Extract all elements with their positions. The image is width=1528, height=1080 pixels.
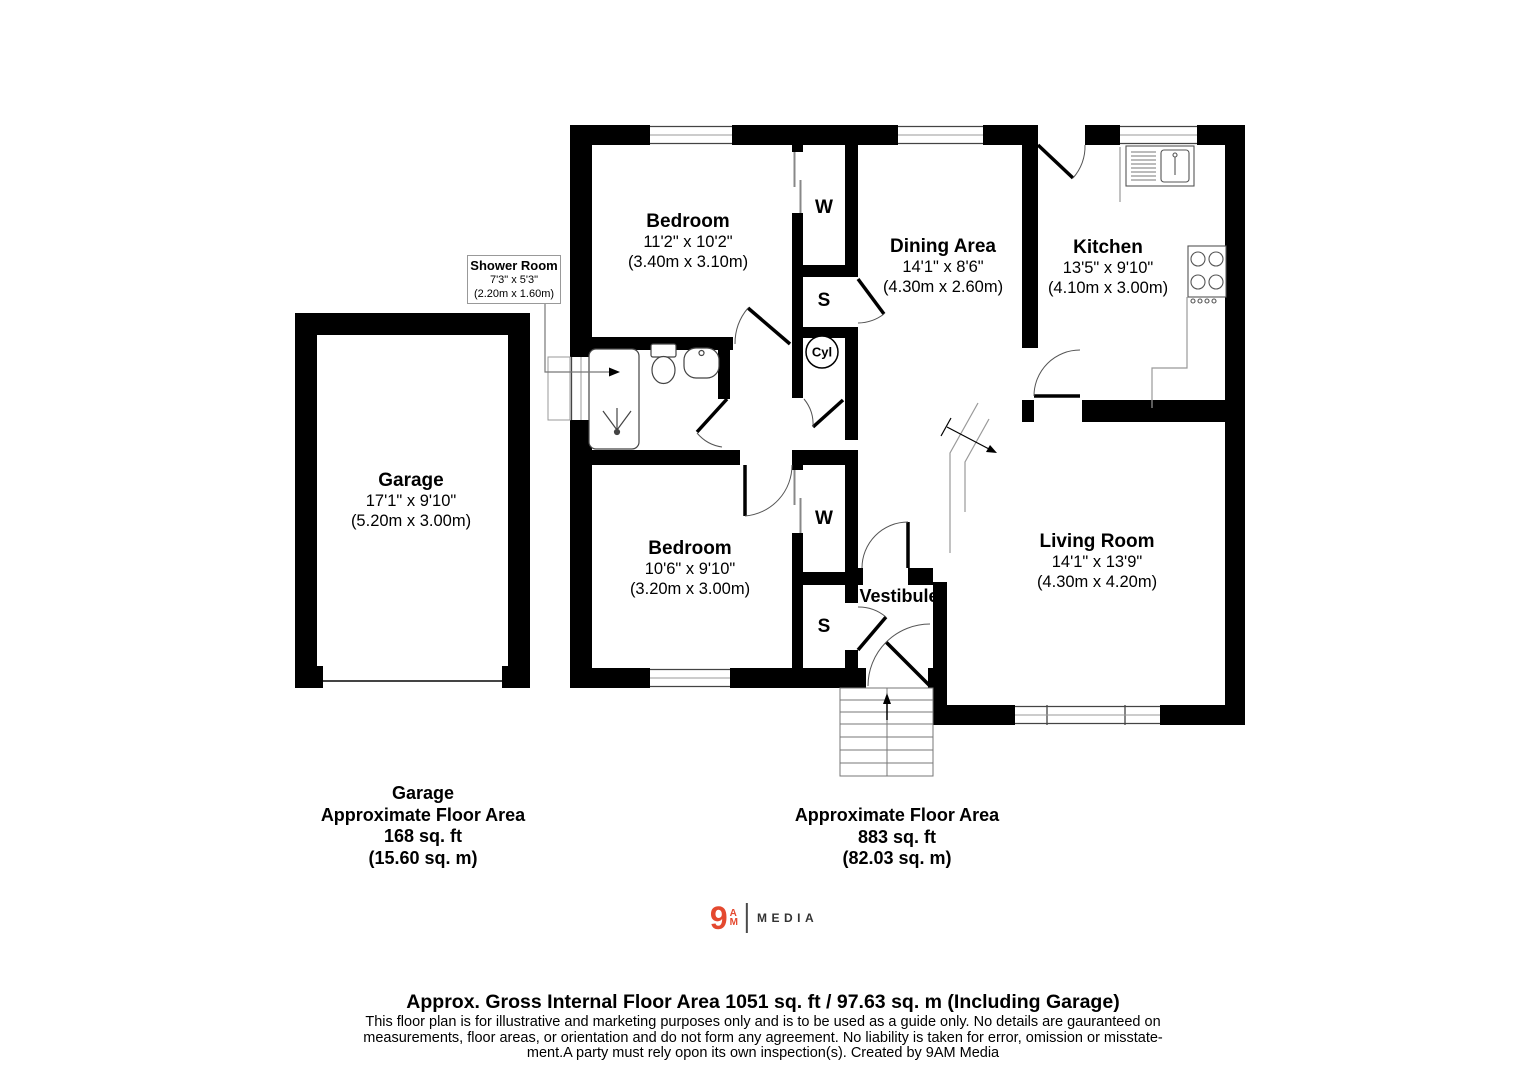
room-name: Living Room xyxy=(1037,532,1157,552)
house-area-line3: (82.03 sq. m) xyxy=(795,848,999,870)
wardrobe-marker-top: W xyxy=(815,197,833,219)
brand-logo: 9 A M MEDIA xyxy=(710,903,818,933)
room-name: Shower Room xyxy=(468,258,560,273)
garage-area-summary: Garage Approximate Floor Area 168 sq. ft… xyxy=(321,783,525,869)
room-dims-imperial: 11'2" x 10'2" xyxy=(628,232,748,252)
room-dims-imperial: 10'6" x 9'10" xyxy=(630,559,750,579)
store-marker-bottom: S xyxy=(818,616,831,638)
logo-am-letters: A M xyxy=(730,909,738,928)
room-dims-imperial: 14'1" x 8'6" xyxy=(883,257,1003,277)
room-name: Bedroom xyxy=(628,212,748,232)
shower-window-sill xyxy=(548,357,570,420)
room-dims-metric: (3.40m x 3.10m) xyxy=(628,252,748,272)
kitchen-sink xyxy=(1126,146,1194,186)
room-dims-imperial: 13'5" x 9'10" xyxy=(1048,258,1168,278)
house-area-line2: 883 sq. ft xyxy=(795,827,999,849)
room-label-kitchen: Kitchen 13'5" x 9'10" (4.10m x 3.00m) xyxy=(1048,238,1168,298)
room-label-dining-area: Dining Area 14'1" x 8'6" (4.30m x 2.60m) xyxy=(883,237,1003,297)
room-label-living-room: Living Room 14'1" x 13'9" (4.30m x 4.20m… xyxy=(1037,532,1157,592)
room-label-garage: Garage 17'1" x 9'10" (5.20m x 3.00m) xyxy=(351,471,471,531)
disclaimer-line-1: This floor plan is for illustrative and … xyxy=(363,1015,1162,1031)
wardrobe-marker-bottom: W xyxy=(815,508,833,530)
shower-cubicle xyxy=(589,349,639,449)
logo-m: M xyxy=(730,918,738,928)
disclaimer-line-2: measurements, floor areas, or orientatio… xyxy=(363,1031,1162,1047)
basin xyxy=(684,348,719,378)
room-dims-metric: (3.20m x 3.00m) xyxy=(630,579,750,599)
room-dims-metric: (4.10m x 3.00m) xyxy=(1048,278,1168,298)
logo-divider xyxy=(746,903,748,933)
garage-area-line1: Approximate Floor Area xyxy=(321,805,525,827)
gross-area-title: Approx. Gross Internal Floor Area 1051 s… xyxy=(406,991,1119,1014)
room-dims-metric: (2.20m x 1.60m) xyxy=(468,287,560,301)
garage-area-title: Garage xyxy=(321,783,525,805)
room-dims-metric: (4.30m x 4.20m) xyxy=(1037,572,1157,592)
room-dims-imperial: 14'1" x 13'9" xyxy=(1037,552,1157,572)
room-label-bedroom-1: Bedroom 11'2" x 10'2" (3.40m x 3.10m) xyxy=(628,212,748,272)
hob xyxy=(1188,246,1226,303)
store-marker-top: S xyxy=(818,290,831,312)
room-dims-imperial: 17'1" x 9'10" xyxy=(351,491,471,511)
toilet xyxy=(651,344,676,384)
room-name: Bedroom xyxy=(630,539,750,559)
disclaimer-text: This floor plan is for illustrative and … xyxy=(363,1015,1162,1062)
logo-nine: 9 xyxy=(710,903,728,933)
floorplan-page: Bedroom 11'2" x 10'2" (3.40m x 3.10m) Di… xyxy=(0,0,1528,1080)
room-label-shower-room: Shower Room 7'3" x 5'3" (2.20m x 1.60m) xyxy=(467,255,561,304)
room-label-vestibule: Vestibule xyxy=(859,586,938,607)
cylinder-marker: Cyl xyxy=(812,345,832,360)
room-name: Garage xyxy=(351,471,471,491)
room-label-bedroom-2: Bedroom 10'6" x 9'10" (3.20m x 3.00m) xyxy=(630,539,750,599)
room-dims-imperial: 7'3" x 5'3" xyxy=(468,273,560,287)
logo-media-text: MEDIA xyxy=(757,911,818,925)
house-area-line1: Approximate Floor Area xyxy=(795,805,999,827)
garage-area-line3: (15.60 sq. m) xyxy=(321,848,525,870)
room-name: Kitchen xyxy=(1048,238,1168,258)
room-name: Dining Area xyxy=(883,237,1003,257)
room-dims-metric: (4.30m x 2.60m) xyxy=(883,277,1003,297)
disclaimer-line-3: ment.A party must rely opon its own insp… xyxy=(363,1046,1162,1062)
room-dims-metric: (5.20m x 3.00m) xyxy=(351,511,471,531)
garage-area-line2: 168 sq. ft xyxy=(321,826,525,848)
house-area-summary: Approximate Floor Area 883 sq. ft (82.03… xyxy=(795,805,999,870)
